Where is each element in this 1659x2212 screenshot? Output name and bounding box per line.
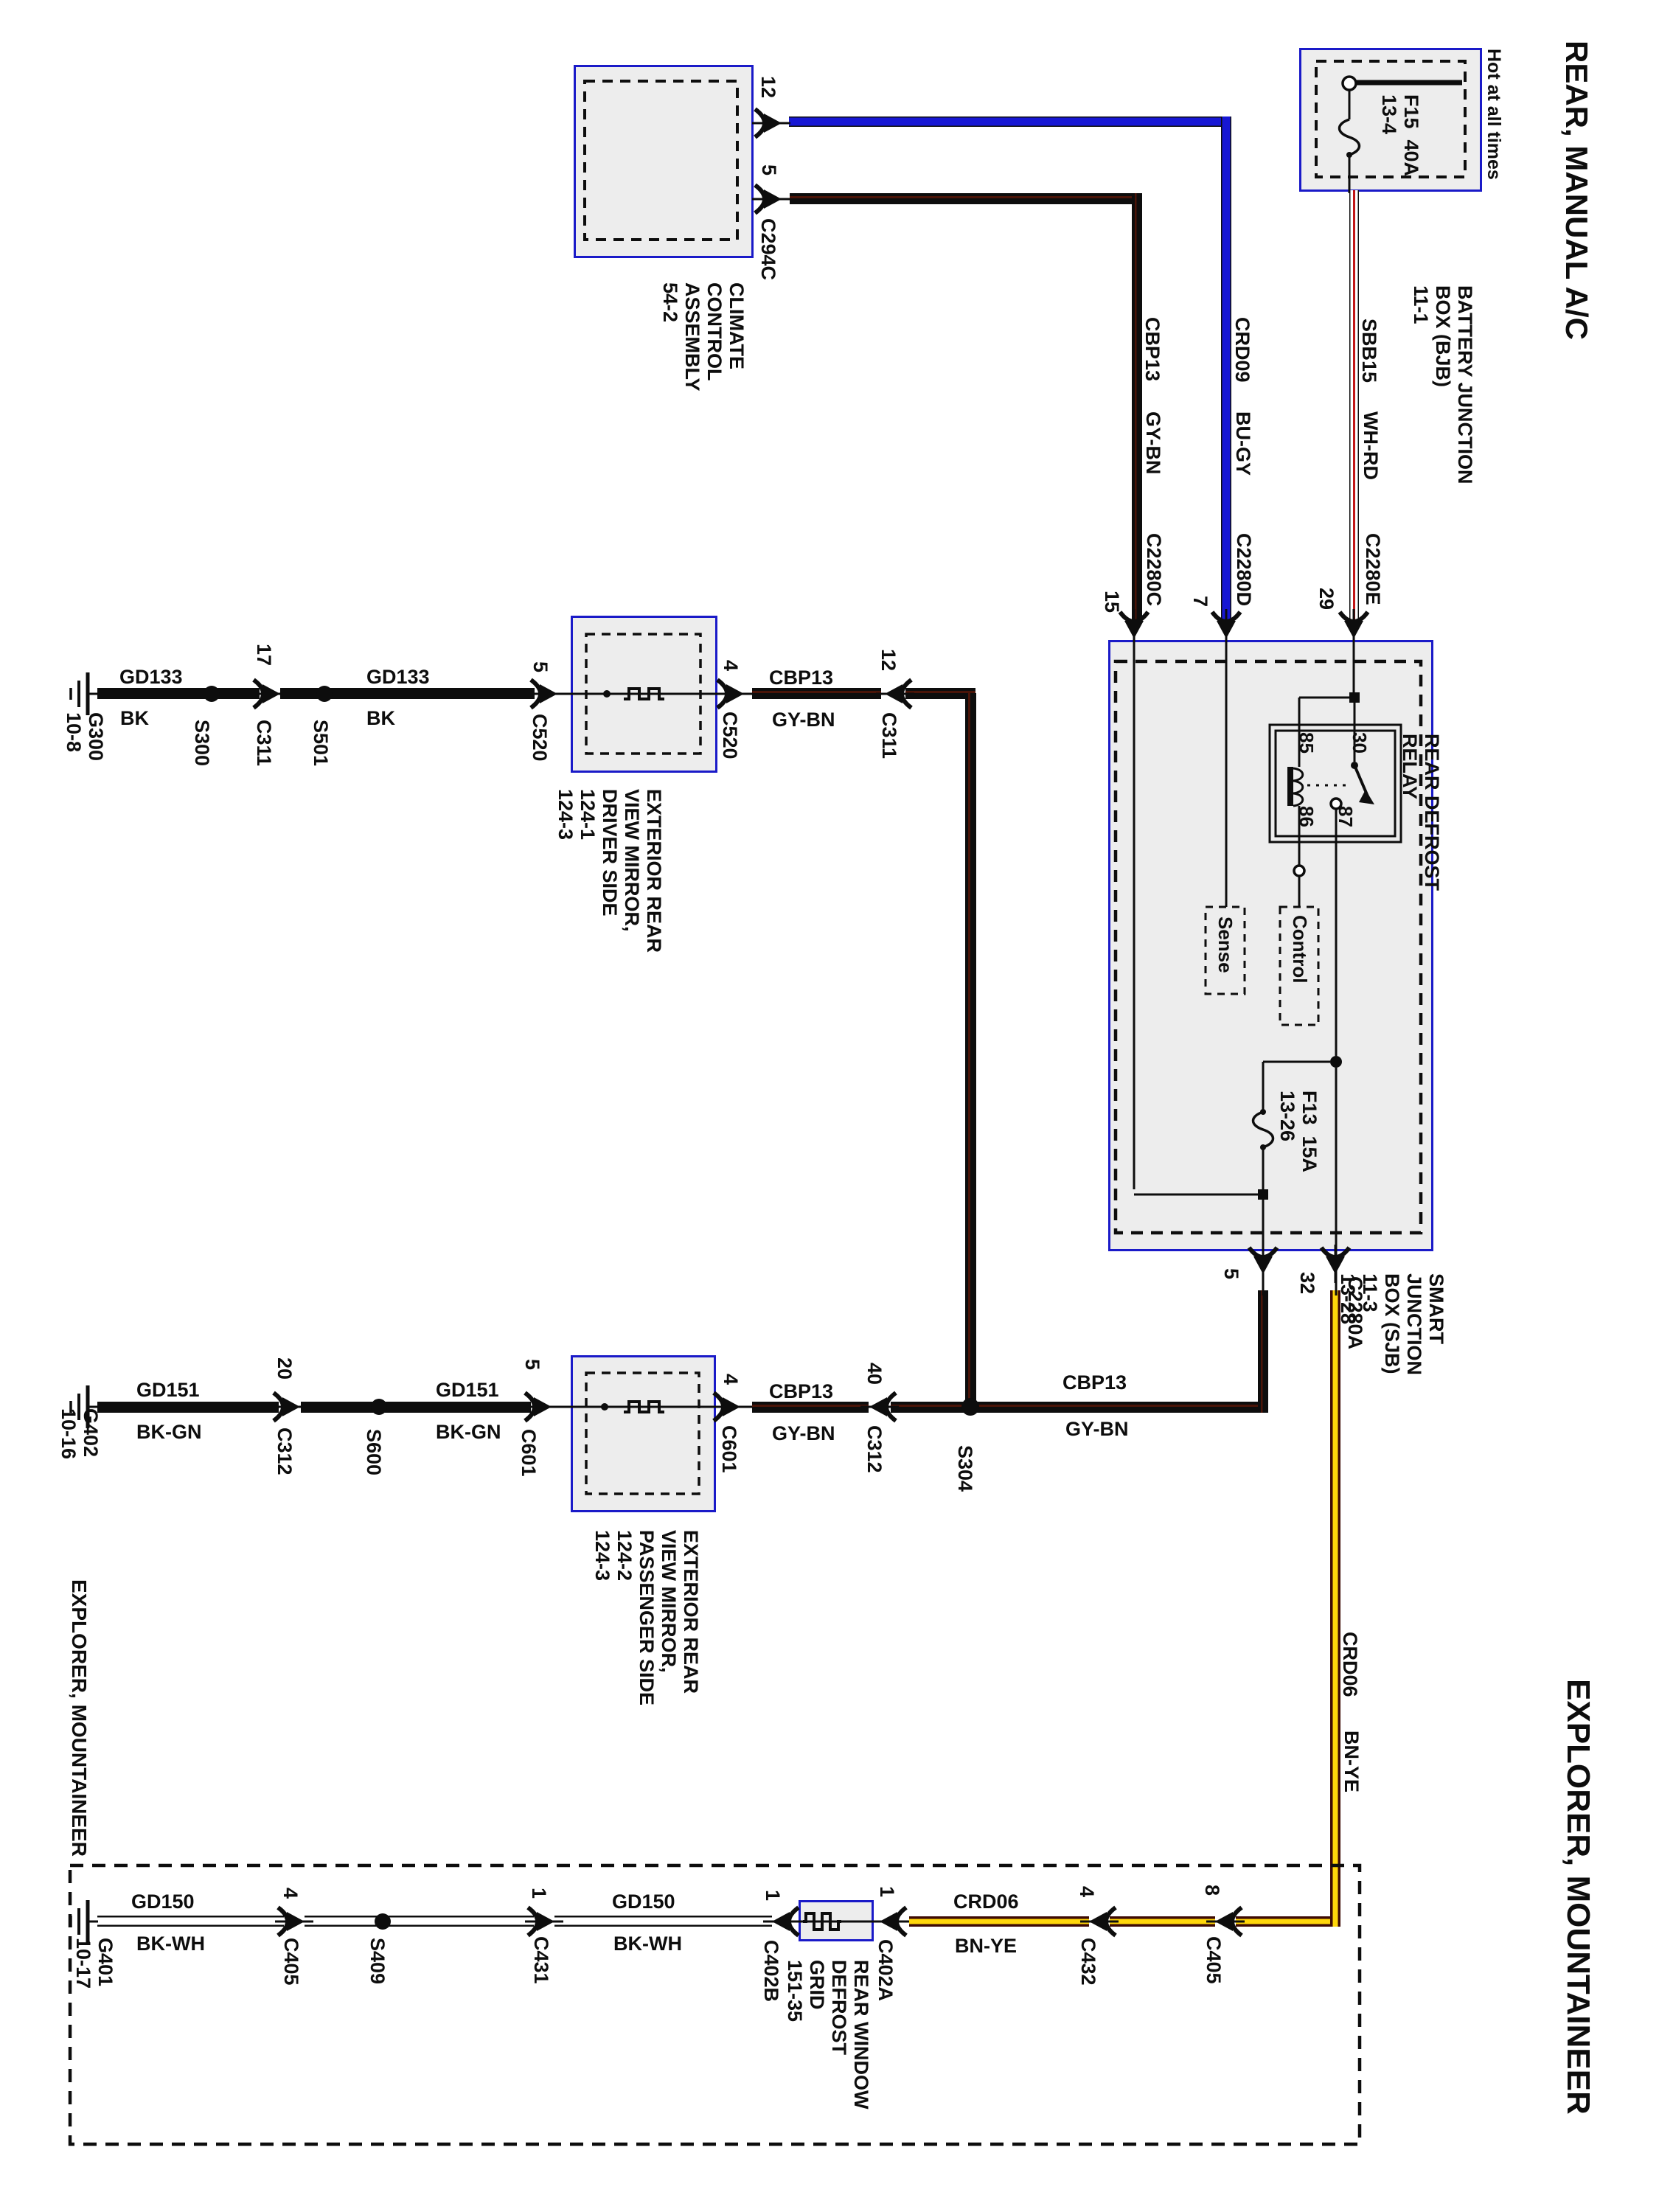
bkgn-2: BK-GN — [436, 1421, 501, 1444]
conn-C2280E-29 — [1340, 609, 1368, 647]
mirror-driver-label-line: EXTERIOR REAR — [643, 789, 665, 953]
fuse-dot-bjb — [1346, 152, 1352, 158]
pin-12-c311-line: 12 — [877, 649, 900, 671]
relay-pin-86: 86 — [1295, 806, 1317, 827]
whrd: WH-RD — [1360, 411, 1382, 480]
g401-label-line: G401 — [94, 1938, 116, 1989]
pin-1-c402a-line: 1 — [876, 1886, 898, 1897]
c311-b: C311 — [878, 712, 900, 759]
relay-pin-85-line: 85 — [1295, 732, 1317, 754]
splice-S409 — [375, 1913, 391, 1930]
whrd-line: WH-RD — [1360, 411, 1382, 480]
control-label-line: Control — [1289, 915, 1310, 983]
c405-b-line: C405 — [1203, 1936, 1225, 1984]
vehicle-label-left: EXPLORER, MOUNTAINEER — [68, 1579, 91, 1857]
pin-5-c520-line: 5 — [529, 661, 552, 672]
climate-inner — [585, 81, 737, 240]
pin-4-c432-line: 4 — [1076, 1886, 1098, 1897]
pin-15-line: 15 — [1101, 591, 1123, 613]
grid-label-line: GRID — [806, 1960, 828, 2109]
mirror-pass-label-line: 124-3 — [591, 1530, 613, 1705]
c601-a: C601 — [518, 1429, 540, 1477]
conn-C294C-12-apex — [764, 114, 782, 133]
pin-4-c520-line: 4 — [720, 660, 742, 671]
conn-C312-20 — [271, 1393, 309, 1421]
junction-87 — [1330, 1056, 1342, 1068]
conn-C312-20-apex — [282, 1397, 300, 1416]
c311-b-line: C311 — [878, 712, 900, 759]
g402-label: G40210-16 — [58, 1408, 102, 1459]
bugy: BU-GY — [1232, 411, 1254, 476]
conn-C432-4-apex — [1089, 1912, 1107, 1931]
bnye-v-line: BN-YE — [1340, 1731, 1363, 1792]
conn-C601-5 — [522, 1393, 560, 1421]
relay-label-line: RELAY — [1399, 734, 1421, 891]
conn-C601-4-apex — [723, 1397, 740, 1416]
conn-C2280D-7 — [1212, 609, 1240, 647]
conn-C2280C-15 — [1120, 609, 1148, 647]
grid-label-line: REAR WINDOW — [850, 1960, 872, 2109]
cbp13-driver-l: CBP13 — [769, 667, 833, 689]
pin-1-c402a: 1 — [876, 1886, 898, 1897]
conn-C431-1 — [525, 1907, 563, 1935]
control-label: Control — [1289, 915, 1310, 983]
conn-C601-4 — [711, 1393, 749, 1421]
conn-C520-4 — [714, 680, 753, 708]
splice-S600 — [371, 1399, 387, 1415]
pin-4-c405-line: 4 — [279, 1888, 302, 1899]
sbb15: SBB15 — [1358, 319, 1380, 383]
sjb-inner — [1116, 661, 1421, 1233]
c2280e: C2280E — [1362, 533, 1384, 605]
pin-1-c431-line: 1 — [528, 1888, 550, 1899]
splice-S501 — [316, 686, 333, 702]
bk-1: BK — [120, 707, 149, 730]
pin-12-climate-line: 12 — [757, 76, 779, 98]
pin-17-line: 17 — [253, 644, 275, 666]
conn-C311-17-apex — [262, 684, 280, 703]
pin-4-c432: 4 — [1076, 1886, 1098, 1897]
mirror-pass-label: EXTERIOR REARVIEW MIRROR,PASSENGER SIDE1… — [591, 1530, 702, 1705]
climate-label-line: 54-2 — [659, 282, 681, 392]
mirror-passenger-inner — [586, 1373, 699, 1494]
conn-C2280C-15-apex — [1124, 621, 1144, 639]
mirror-driver-label-line: 124-3 — [554, 789, 577, 953]
s409-label: S409 — [366, 1938, 389, 1984]
climate-label: CLIMATECONTROLASSEMBLY54-2 — [659, 282, 748, 392]
fuse-dot-f13b — [1260, 1144, 1266, 1150]
pin-29: 29 — [1315, 588, 1338, 610]
cbp13-s304-l: CBP13 — [1062, 1371, 1127, 1394]
c402b-label: C402B — [760, 1940, 782, 2002]
vehicle-label-right-line: EXPLORER, MOUNTAINEER — [1560, 1679, 1596, 2115]
g300-label: G30010-8 — [63, 712, 107, 761]
relay-label-line: REAR DEFROST — [1421, 734, 1443, 891]
s600-label-line: S600 — [363, 1429, 385, 1475]
pin-5-c520: 5 — [529, 661, 552, 672]
conn-C405-8 — [1206, 1907, 1245, 1935]
g300-label-line: 10-8 — [63, 712, 85, 761]
relay-label: REAR DEFROSTRELAY — [1399, 734, 1443, 891]
c294c-line: C294C — [757, 218, 779, 280]
path-20 — [1359, 790, 1374, 804]
dot-mirror-driver — [603, 690, 611, 698]
c601-b-line: C601 — [718, 1425, 740, 1473]
c405-b: C405 — [1203, 1936, 1225, 1984]
climate-label-line: ASSEMBLY — [681, 282, 703, 392]
path-29 — [1293, 768, 1303, 806]
conn-C520-4-apex — [726, 684, 744, 703]
c311-a: C311 — [253, 720, 275, 766]
pin-15: 15 — [1101, 591, 1123, 613]
c431-label-line: C431 — [530, 1936, 552, 1984]
c520-a-line: C520 — [529, 714, 551, 762]
pin-1-c402b-line: 1 — [762, 1890, 784, 1901]
gd151-1: GD151 — [136, 1379, 200, 1402]
mirror-driver-label-line: 124-1 — [577, 789, 599, 953]
cbp13-v: CBP13 — [1141, 317, 1164, 381]
junction-power — [1349, 692, 1360, 703]
s304-label: S304 — [954, 1445, 976, 1492]
inline-conn-86 — [1294, 866, 1304, 876]
vehicle-label-right: EXPLORER, MOUNTAINEER — [1560, 1679, 1596, 2115]
explorer-region-box — [70, 1865, 1360, 2144]
bkgn-1: BK-GN — [136, 1421, 202, 1444]
path-2 — [1340, 119, 1360, 155]
gd133-1: GD133 — [119, 666, 183, 689]
s304-label-line: S304 — [954, 1445, 976, 1492]
pin-1-c402b: 1 — [762, 1890, 784, 1901]
pin-40: 40 — [863, 1363, 886, 1385]
s501-label: S501 — [310, 720, 332, 766]
conn-C2280A-32-apex — [1326, 1256, 1345, 1274]
conn-C2280A-5-apex — [1253, 1256, 1273, 1274]
c294c: C294C — [757, 218, 779, 280]
gybn-v: GY-BN — [1142, 411, 1164, 475]
g402-label-line: G402 — [80, 1408, 102, 1459]
gd151-2: GD151 — [436, 1379, 499, 1402]
c601-b: C601 — [718, 1425, 740, 1473]
fuse-dot-f13a — [1260, 1109, 1266, 1115]
conn-C520-5 — [528, 680, 566, 708]
c312-b: C312 — [863, 1425, 886, 1473]
conn-C520-5-apex — [540, 684, 557, 703]
conn-C294C-5-apex — [764, 189, 782, 209]
pin-20: 20 — [274, 1357, 296, 1380]
relay-pin-87-line: 87 — [1335, 806, 1356, 827]
conn-C402A-1-apex — [880, 1912, 897, 1931]
conn-C312-40 — [860, 1393, 899, 1421]
conn-C405-8-apex — [1215, 1912, 1233, 1931]
s600-label: S600 — [363, 1429, 385, 1475]
crd09-line: CRD09 — [1231, 317, 1253, 383]
conn-C432-4 — [1080, 1907, 1119, 1935]
pin-4-c601: 4 — [720, 1374, 742, 1385]
sjb-pin-32-line: 32 — [1296, 1272, 1318, 1294]
conn-C431-1-apex — [537, 1912, 554, 1931]
grid-label: REAR WINDOWDEFROSTGRID151-35 — [784, 1960, 872, 2109]
bjb-label-line: BOX (BJB) — [1432, 285, 1454, 484]
relay-pin-30: 30 — [1349, 732, 1370, 754]
c520-a: C520 — [529, 714, 551, 762]
mirror-driver-label-line: VIEW MIRROR, — [621, 789, 643, 953]
sjb-label: SMARTJUNCTIONBOX (SJB)11-313-28 — [1337, 1273, 1447, 1375]
mirror-pass-label-line: 124-2 — [613, 1530, 636, 1705]
pin-4-c405: 4 — [279, 1888, 302, 1899]
conn-C2280E-29-apex — [1344, 621, 1363, 639]
sbb15-line: SBB15 — [1358, 319, 1380, 383]
pin-5-c601: 5 — [521, 1359, 543, 1370]
cbp13-v-line: CBP13 — [1141, 317, 1164, 381]
g401-label: G40110-17 — [72, 1938, 116, 1989]
bugy-line: BU-GY — [1232, 411, 1254, 476]
path-25 — [1253, 1112, 1273, 1147]
conn-C405-4-apex — [287, 1912, 305, 1931]
switch-pivot — [1351, 762, 1358, 769]
s501-label-line: S501 — [310, 720, 332, 766]
pin-7: 7 — [1189, 596, 1211, 607]
sjb-pin-32: 32 — [1296, 1272, 1318, 1294]
splice-S300 — [204, 686, 220, 702]
bnye-v: BN-YE — [1340, 1731, 1363, 1792]
relay-pin-85: 85 — [1295, 732, 1317, 754]
gd133-2: GD133 — [366, 666, 430, 689]
page-title: REAR, MANUAL A/C — [1559, 41, 1594, 340]
pin-12-c311: 12 — [877, 649, 900, 671]
conn-C312-40-apex — [869, 1397, 887, 1416]
splice-S304 — [961, 1398, 979, 1416]
pin-17: 17 — [253, 644, 275, 666]
climate-label-line: CLIMATE — [726, 282, 748, 392]
vehicle-label-left-line: EXPLORER, MOUNTAINEER — [68, 1579, 91, 1857]
c2280c-line: C2280C — [1143, 533, 1165, 606]
c432-label: C432 — [1077, 1938, 1099, 1986]
c432-label-line: C432 — [1077, 1938, 1099, 1986]
c405-a-line: C405 — [280, 1938, 302, 1986]
s409-label-line: S409 — [366, 1938, 389, 1984]
bkwh-2: BK-WH — [613, 1933, 682, 1955]
pin-1-c431: 1 — [528, 1888, 550, 1899]
gybn-pass-l: GY-BN — [772, 1422, 835, 1445]
c402b-label-line: C402B — [760, 1940, 782, 2002]
fuse-f13-label-line: 13-26 — [1276, 1091, 1298, 1172]
pin-8-c405: 8 — [1201, 1885, 1223, 1896]
c402a-label-line: C402A — [874, 1939, 897, 2001]
cbp13-pass-l: CBP13 — [769, 1380, 833, 1403]
pin-4-c520: 4 — [720, 660, 742, 671]
relay-pin-87: 87 — [1335, 806, 1356, 827]
grid-label-line: 151-35 — [784, 1960, 806, 2109]
gybn-v-line: GY-BN — [1142, 411, 1164, 475]
mirror-pass-label-line: PASSENGER SIDE — [636, 1530, 658, 1705]
conn-C405-4 — [275, 1907, 313, 1935]
pin-5-climate: 5 — [758, 164, 780, 175]
s300-label: S300 — [191, 720, 213, 766]
c431-label: C431 — [530, 1936, 552, 1984]
mirror-driver-label: EXTERIOR REARVIEW MIRROR,DRIVER SIDE124-… — [554, 789, 665, 953]
mirror-driver-label-line: DRIVER SIDE — [599, 789, 621, 953]
conn-C311-12-apex — [885, 684, 902, 703]
crd06-l: CRD06 — [953, 1891, 1019, 1913]
conn-C2280A-5 — [1249, 1245, 1277, 1283]
crd06-v-line: CRD06 — [1339, 1632, 1361, 1697]
wiring-diagram-page: REAR, MANUAL A/CEXPLORER, MOUNTAINEEREXP… — [0, 0, 1659, 2212]
c601-a-line: C601 — [518, 1429, 540, 1477]
junction-f13 — [1258, 1189, 1268, 1200]
c2280d-line: C2280D — [1233, 533, 1255, 606]
pin-5-c601-line: 5 — [521, 1359, 543, 1370]
bkwh-1: BK-WH — [136, 1933, 205, 1955]
g401-label-line: 10-17 — [72, 1938, 94, 1989]
conn-C601-5-apex — [534, 1397, 552, 1416]
gybn-driver-l: GY-BN — [772, 709, 835, 731]
g300-label-line: G300 — [85, 712, 107, 761]
g402-label-line: 10-16 — [58, 1408, 80, 1459]
sjb-label-line: 13-28 — [1337, 1273, 1359, 1375]
c402a-label: C402A — [874, 1939, 897, 2001]
pin-40-line: 40 — [863, 1363, 886, 1385]
grid-label-line: DEFROST — [828, 1960, 850, 2109]
c311-a-line: C311 — [253, 720, 275, 766]
sense-label: Sense — [1214, 917, 1236, 973]
mirror-pass-label-line: EXTERIOR REAR — [680, 1530, 702, 1705]
conn-C402B-1-apex — [772, 1912, 790, 1931]
conn-C2280D-7-apex — [1217, 621, 1236, 639]
bnye-l: BN-YE — [955, 1935, 1017, 1958]
hot-at-all-times: Hot at all times — [1484, 49, 1504, 180]
fuse-f15-label-line: 13-4 — [1378, 94, 1400, 176]
relay-pin-30-line: 30 — [1349, 732, 1370, 754]
s300-label-line: S300 — [191, 720, 213, 766]
c312-a: C312 — [274, 1427, 296, 1475]
pin-4-c601-line: 4 — [720, 1374, 742, 1385]
sjb-label-line: JUNCTION — [1403, 1273, 1425, 1375]
c2280d: C2280D — [1233, 533, 1255, 606]
bjb-label-line: 11-1 — [1410, 285, 1432, 484]
c2280c: C2280C — [1143, 533, 1165, 606]
sense-label-line: Sense — [1214, 917, 1236, 973]
bjb-label: BATTERY JUNCTIONBOX (BJB)11-1 — [1410, 285, 1476, 484]
climate-label-line: CONTROL — [703, 282, 726, 392]
sjb-label-line: BOX (SJB) — [1381, 1273, 1403, 1375]
conn-C294C-5 — [752, 185, 790, 213]
conn-C311-17 — [251, 680, 289, 708]
fuse-f13-label: F13 15A13-26 — [1276, 1091, 1321, 1172]
pin-12-climate: 12 — [757, 76, 779, 98]
crd09: CRD09 — [1231, 317, 1253, 383]
c2280e-line: C2280E — [1362, 533, 1384, 605]
bjb-label-line: BATTERY JUNCTION — [1454, 285, 1476, 484]
c312-b-line: C312 — [863, 1425, 886, 1473]
c312-a-line: C312 — [274, 1427, 296, 1475]
page-title-line: REAR, MANUAL A/C — [1559, 41, 1594, 340]
fuse-f13-label-line: F13 15A — [1298, 1091, 1321, 1172]
sjb-pin-5: 5 — [1220, 1268, 1242, 1279]
gybn-s304-l: GY-BN — [1065, 1418, 1129, 1441]
relay-pin-86-line: 86 — [1295, 806, 1317, 827]
conn-C402A-1 — [871, 1907, 909, 1935]
conn-C402B-1 — [763, 1907, 801, 1935]
pin-7-line: 7 — [1189, 596, 1211, 607]
dot-mirror-pass — [601, 1403, 608, 1411]
fuse-f15-label-line: F15 40A — [1400, 94, 1422, 176]
c405-a: C405 — [280, 1938, 302, 1986]
pin-29-line: 29 — [1315, 588, 1338, 610]
pin-5-climate-line: 5 — [758, 164, 780, 175]
mirror-pass-label-line: VIEW MIRROR, — [658, 1530, 680, 1705]
c520-b: C520 — [719, 712, 741, 759]
hot-at-all-times-line: Hot at all times — [1484, 49, 1504, 180]
conn-C294C-12 — [752, 109, 790, 137]
conn-C311-12 — [876, 680, 914, 708]
path-28 — [1287, 767, 1293, 806]
sjb-label-line: SMART — [1425, 1273, 1447, 1375]
c520-b-line: C520 — [719, 712, 741, 759]
gd150-1: GD150 — [131, 1891, 195, 1913]
bk-2: BK — [366, 707, 395, 730]
crd06-v: CRD06 — [1339, 1632, 1361, 1697]
sjb-label-line: 11-3 — [1359, 1273, 1381, 1375]
bjb-fuse-terminal — [1343, 77, 1356, 90]
pin-8-c405-line: 8 — [1201, 1885, 1223, 1896]
fuse-f15-label: F15 40A13-4 — [1378, 94, 1422, 176]
pin-20-line: 20 — [274, 1357, 296, 1380]
sjb-pin-5-line: 5 — [1220, 1268, 1242, 1279]
gd150-2: GD150 — [612, 1891, 675, 1913]
